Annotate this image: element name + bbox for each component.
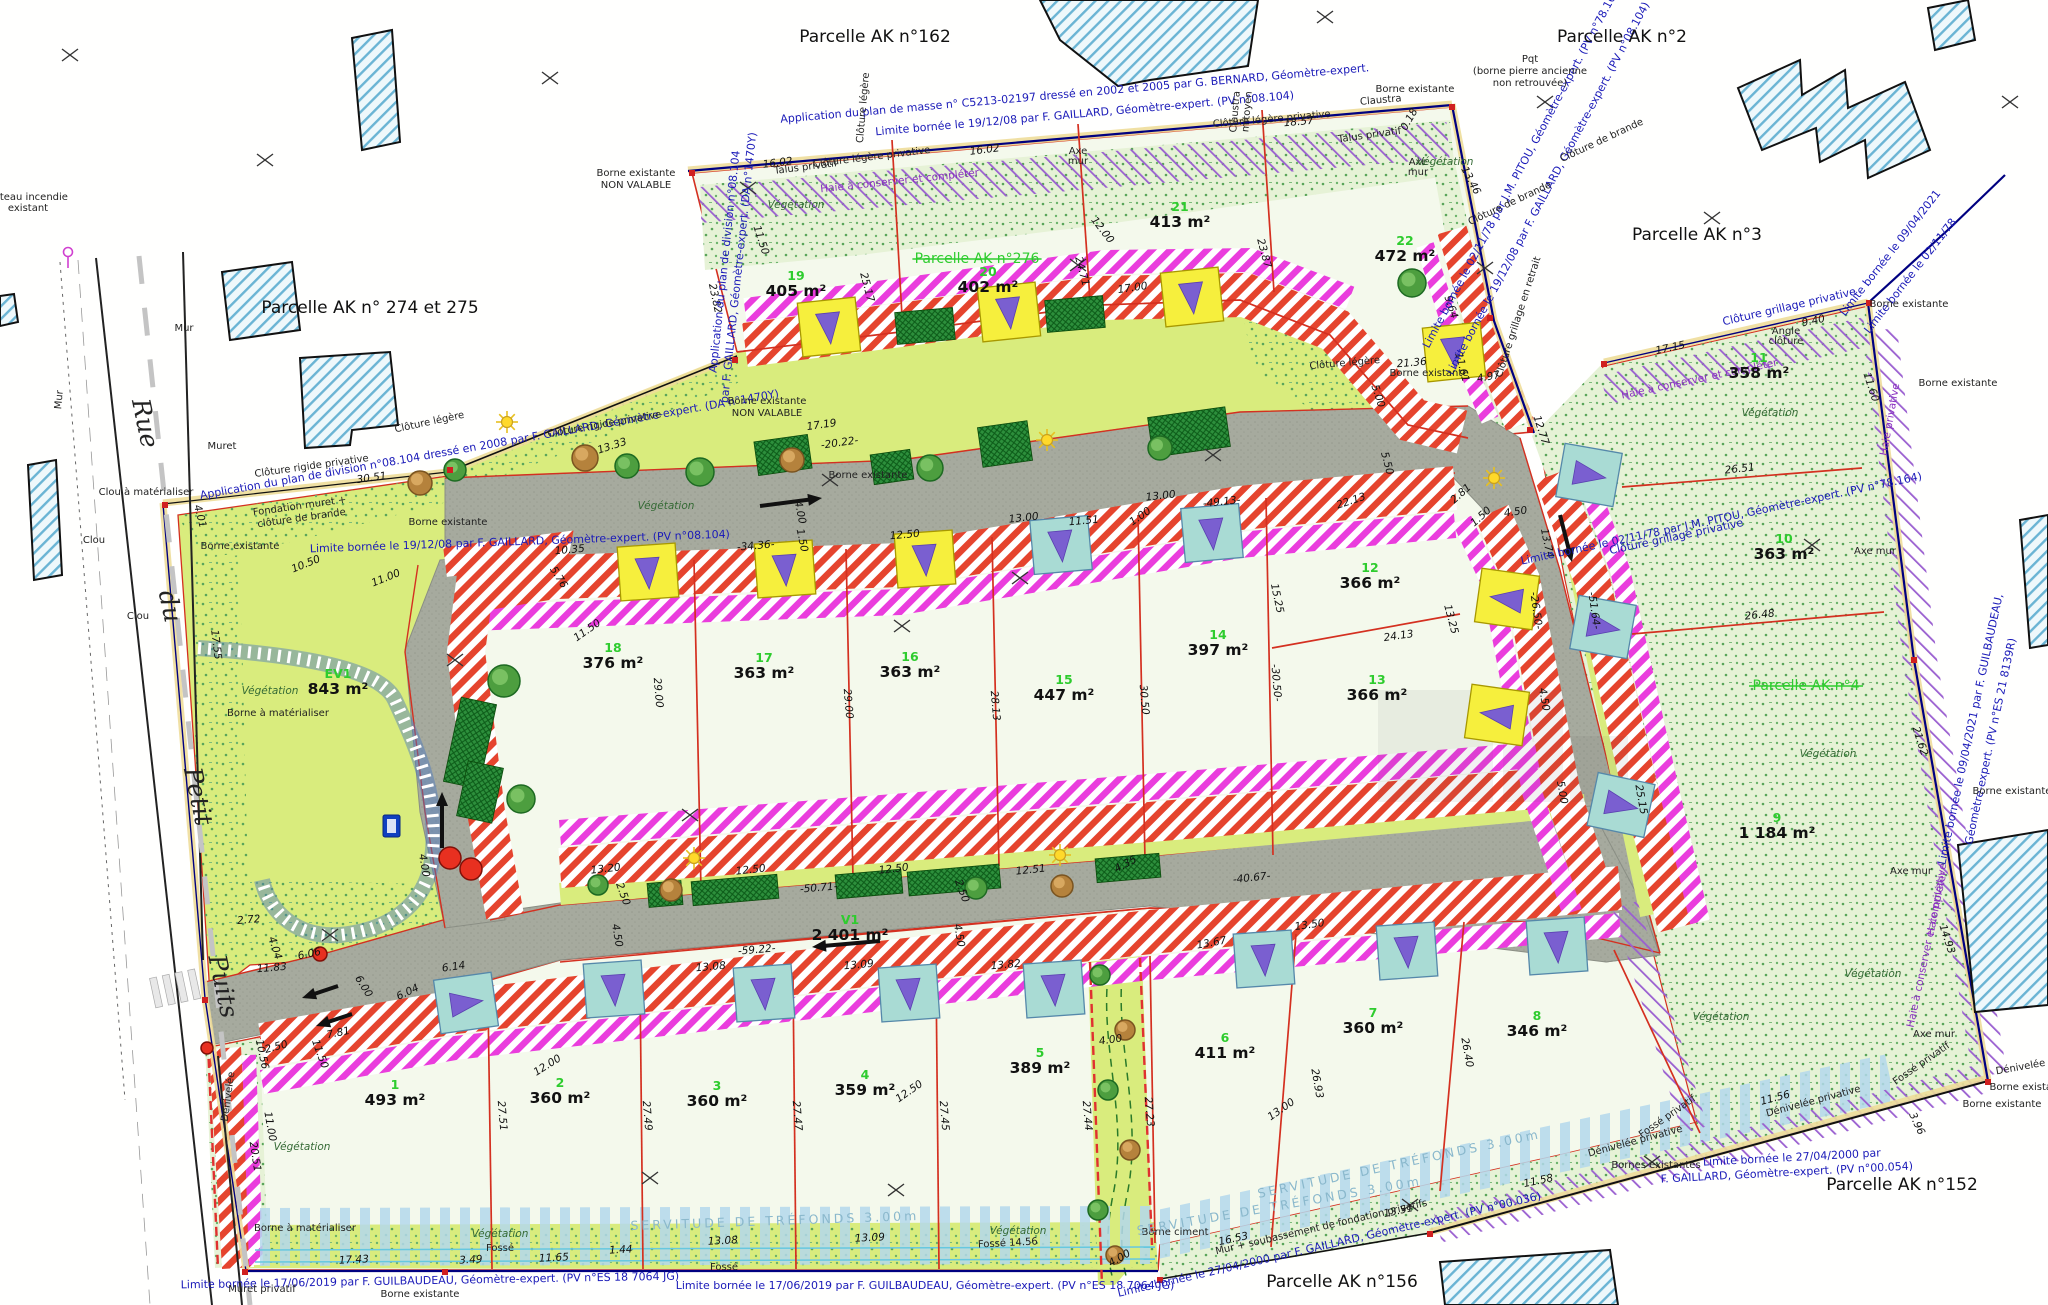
parcel-title-label: Parcelle AK n°152 (1826, 1175, 1978, 1195)
lot-area-label: 405 m² (766, 282, 827, 300)
hydrant-head (64, 248, 73, 257)
plan-annotation: Borne existante (1870, 299, 1949, 310)
tree-highlight (1402, 273, 1416, 287)
access-box-cyan (733, 964, 795, 1022)
fire-hydrant-icon (64, 248, 73, 269)
lot-number-label: 21 (1171, 199, 1188, 214)
lot-number-label: 9 (1773, 810, 1782, 825)
tree-highlight (1093, 968, 1103, 978)
plan-annotation: Muret privatif (228, 1284, 296, 1295)
lamp-bulb (502, 417, 513, 428)
boundary-marker-icon (162, 502, 168, 508)
lot-area-label: 360 m² (530, 1089, 591, 1107)
plan-annotation: (borne pierre ancienne (1473, 66, 1587, 77)
parcel-title-label: Parcelle AK n°156 (1266, 1272, 1418, 1292)
hedge (977, 421, 1032, 468)
tree-icon (1148, 436, 1172, 460)
crosswalk (150, 969, 201, 1008)
dimension-label: 3.49 (459, 1253, 483, 1266)
dimension-label: 11.65 (539, 1251, 570, 1265)
survey-cross-icon (2002, 96, 2018, 108)
hedge (1045, 296, 1106, 333)
tree-highlight (783, 450, 795, 462)
tree-icon (1088, 1200, 1108, 1220)
access-box-cyan (434, 972, 499, 1034)
boundary-marker-icon (242, 1269, 248, 1275)
plan-annotation: Fossé (710, 1261, 738, 1273)
access-box-cyan (1233, 930, 1295, 988)
plan-annotation: Mur (53, 389, 66, 410)
building (1958, 830, 2048, 1012)
sign-glyph (387, 819, 396, 833)
lot-number-label: 20 (979, 264, 997, 279)
tree-icon (507, 785, 535, 813)
access-box-cyan (1556, 443, 1622, 506)
plan-annotation: Bornes existantes (1611, 1160, 1700, 1171)
lot-area-label: 397 m² (1188, 641, 1249, 659)
street-lamp-icon (496, 411, 518, 433)
building (0, 294, 18, 326)
lamp-ray (511, 414, 515, 418)
lamp-bulb (1042, 435, 1053, 446)
building (1928, 0, 1975, 50)
street-lamp-icon (1483, 467, 1505, 489)
lot-number-label: 5 (1036, 1045, 1045, 1060)
survey-cross-icon (1704, 212, 1720, 224)
plan-annotation: clôture (1769, 335, 1804, 347)
cadastral-plan-drawing: 16.0216.0218.570.1813.469.6411.614.9723.… (0, 0, 2048, 1305)
tree-highlight (1123, 1142, 1133, 1152)
tree-highlight (511, 789, 525, 803)
lamp-ray (499, 414, 503, 418)
lamp-ray (511, 426, 515, 430)
lot-area-label: 447 m² (1034, 686, 1095, 704)
tree-icon (1098, 1080, 1118, 1100)
tree-highlight (1151, 439, 1163, 451)
lot-area-label: 363 m² (880, 663, 941, 681)
lot-area-label: 360 m² (1343, 1019, 1404, 1037)
access-box-yellow (1465, 684, 1530, 746)
tree-brown-icon (408, 471, 432, 495)
building (300, 352, 398, 448)
plan-annotation: NON VALABLE (732, 408, 802, 419)
access-box-cyan (1376, 922, 1438, 980)
dimension-label: 2.72 (237, 913, 262, 927)
plan-annotation: Pqt (1522, 54, 1538, 65)
tree-highlight (1101, 1083, 1111, 1093)
plan-annotation: Clou (83, 535, 105, 546)
lot-number-label: 8 (1533, 1008, 1542, 1023)
site-plan-canvas: 16.0216.0218.570.1813.469.6411.614.9723.… (0, 0, 2048, 1305)
lot-number-label: EV1 (325, 666, 352, 681)
plan-annotation: Borne existante (829, 470, 908, 481)
lot-number-label: 7 (1369, 1005, 1378, 1020)
lamp-bulb (689, 853, 700, 864)
lot-number-label: 11 (1750, 350, 1767, 365)
lot-number-label: 19 (787, 268, 804, 283)
tree-icon (917, 455, 943, 481)
lot-number-label: 15 (1055, 672, 1072, 687)
access-box-cyan (583, 960, 645, 1018)
street-lamp-icon (683, 847, 705, 869)
plan-annotation: Borne existante (728, 396, 807, 407)
plan-annotation: NON VALABLE (601, 180, 671, 191)
plan-annotation: Végétation (1417, 156, 1474, 168)
hedge (895, 308, 956, 345)
tree-highlight (920, 458, 933, 471)
lot-area-label: 413 m² (1150, 213, 1211, 231)
survey-cross-icon (1317, 11, 1333, 23)
parcel-title-label: Parcelle AK n° 274 et 275 (261, 298, 478, 318)
tree-highlight (1118, 1022, 1128, 1032)
dimension-label: 13.08 (708, 1234, 739, 1248)
tree-brown-icon (1120, 1140, 1140, 1160)
red-marker-icon (201, 1042, 213, 1054)
access-box-cyan (878, 964, 940, 1022)
plan-annotation: Poteau incendie (0, 192, 68, 203)
access-box-cyan (1023, 960, 1085, 1018)
lamp-ray (499, 426, 503, 430)
survey-cross-icon (542, 72, 558, 84)
plan-annotation: Végétation (1742, 407, 1799, 419)
access-box-yellow (1160, 267, 1223, 327)
tree-highlight (591, 878, 601, 888)
lot-number-label: 22 (1396, 233, 1413, 248)
building (2020, 515, 2048, 648)
dimension-label: 13.09 (855, 1231, 886, 1245)
dimension-label: 3.96 (1906, 1111, 1927, 1138)
plan-annotation: Mur (174, 323, 194, 334)
plan-annotation: Borne existante (1919, 378, 1998, 389)
lot-area-label: 366 m² (1340, 574, 1401, 592)
plan-annotation: Borne existante (1973, 786, 2048, 797)
plan-annotation: non retrouvée) (1493, 77, 1568, 89)
lot-area-label: 843 m² (308, 680, 369, 698)
plan-annotation: Clôture légère (393, 409, 465, 435)
lot-number-label: 16 (901, 649, 919, 664)
dimension-label: 1.44 (609, 1243, 633, 1256)
boundary-marker-icon (1487, 315, 1493, 321)
boundary-marker-icon (202, 997, 208, 1003)
survey-cross-icon (257, 154, 273, 166)
plan-annotation: Axe mur (1854, 546, 1897, 557)
lot-number-label: 13 (1368, 672, 1385, 687)
lot-area-label: 359 m² (835, 1081, 896, 1099)
tree-highlight (618, 457, 630, 469)
plan-annotation: Borne à matérialiser (227, 707, 330, 719)
lot-area-label: 363 m² (1754, 545, 1815, 563)
lot-number-label: 6 (1221, 1030, 1230, 1045)
tree-icon (615, 454, 639, 478)
tree-highlight (1054, 877, 1065, 888)
parcel-title-label: Parcelle AK n°162 (799, 27, 951, 47)
tree-highlight (1091, 1203, 1101, 1213)
tree-brown-icon (1051, 875, 1073, 897)
plan-annotation: Borne existante (381, 1289, 460, 1300)
tree-brown-icon (572, 445, 598, 471)
street-name-label: du (153, 588, 188, 625)
tree-highlight (492, 669, 508, 685)
lot-number-label: 4 (861, 1067, 870, 1082)
plan-annotation: Borne existante (597, 168, 676, 179)
lot-area-label: 2 401 m² (812, 926, 889, 944)
lot-area-label: 363 m² (734, 664, 795, 682)
lot-area-label: 472 m² (1375, 247, 1436, 265)
plan-annotation: Axe mur (1890, 866, 1933, 877)
tree-icon (686, 458, 714, 486)
plan-annotation: mur (1068, 156, 1089, 167)
access-box-yellow (617, 543, 679, 601)
dimension-label: 17.43 (339, 1253, 370, 1267)
plan-annotation: existant (8, 203, 48, 214)
access-box-cyan (1526, 917, 1588, 975)
lot-area-label: 376 m² (583, 654, 644, 672)
boundary-marker-icon (1911, 657, 1917, 663)
plan-annotation: Borne existante (201, 541, 280, 552)
lot-number-label: 18 (604, 640, 621, 655)
plan-annotation: Végétation (1845, 968, 1902, 980)
tree-highlight (575, 448, 588, 461)
lamp-bulb (1055, 850, 1066, 861)
building (28, 460, 62, 580)
tree-icon (1090, 965, 1110, 985)
plan-annotation: Muret (208, 441, 237, 452)
tree-highlight (690, 462, 704, 476)
parcel-title-label: Parcelle AK n°3 (1632, 225, 1762, 245)
tree-brown-icon (660, 879, 682, 901)
tree-highlight (968, 880, 979, 891)
plan-annotation: Végétation (768, 199, 825, 211)
plan-annotation: Fossé (486, 1242, 514, 1254)
lot-number-label: 2 (556, 1075, 565, 1090)
building (1440, 1250, 1618, 1305)
lot-area-label: 366 m² (1347, 686, 1408, 704)
plan-annotation: Clou (127, 611, 149, 622)
lot-area-label: 358 m² (1729, 364, 1790, 382)
lot-area-label: 360 m² (687, 1092, 748, 1110)
plan-annotation: Végétation (472, 1228, 529, 1240)
plan-annotation: Borne existante (1990, 1082, 2048, 1093)
plan-annotation: Végétation (1800, 748, 1857, 760)
boundary-marker-icon (1601, 361, 1607, 367)
boundary-marker-icon (689, 170, 695, 176)
plan-annotation: Végétation (990, 1225, 1047, 1237)
lot-area-label: 402 m² (958, 278, 1019, 296)
access-box-cyan (1181, 504, 1243, 563)
lot-number-label: 14 (1209, 627, 1227, 642)
lot-number-label: 10 (1775, 531, 1793, 546)
lamp-bulb (1489, 473, 1500, 484)
red-marker-icon (439, 847, 461, 869)
tree-highlight (411, 473, 423, 485)
tree-icon (588, 875, 608, 895)
plan-annotation: Borne existante (1390, 368, 1469, 379)
plan-annotation: Borne existante (409, 517, 488, 528)
parcel-title-label: Parcelle AK n°2 (1557, 27, 1687, 47)
plan-annotation: Végétation (274, 1141, 331, 1153)
boundary-marker-icon (1527, 427, 1533, 433)
building (1738, 60, 1930, 178)
boundary-marker-icon (447, 467, 453, 473)
lot-area-label: 411 m² (1195, 1044, 1256, 1062)
boundary-annotation: Limite bornée le 17/06/2019 par F. GUILB… (676, 1279, 1175, 1292)
tree-icon (488, 665, 520, 697)
lot-area-label: 1 184 m² (1739, 824, 1816, 842)
access-box-yellow (797, 297, 860, 357)
lot-number-label: V1 (841, 912, 859, 927)
tree-brown-icon (780, 448, 804, 472)
plan-annotation: Végétation (242, 685, 299, 697)
tree-highlight (663, 881, 674, 892)
plan-annotation: Borne à matérialiser (254, 1222, 357, 1234)
info-sign-icon (383, 815, 400, 837)
lot-number-label: 17 (755, 650, 772, 665)
boundary-marker-icon (1427, 1231, 1433, 1237)
lot-number-label: 3 (713, 1078, 722, 1093)
plan-annotation: Axe mur (1913, 1029, 1956, 1040)
lot-area-label: 389 m² (1010, 1059, 1071, 1077)
building (352, 30, 400, 150)
plan-annotation: Végétation (1693, 1011, 1750, 1023)
red-marker-icon (460, 858, 482, 880)
street-lamp-icon (1036, 429, 1058, 451)
boundary-marker-icon (1449, 104, 1455, 110)
street-name-label: Rue (126, 395, 165, 451)
street-lamp-icon (1049, 844, 1071, 866)
plan-annotation: Clou à matérialiser (99, 486, 195, 498)
plan-annotation: Borne existante (1376, 84, 1455, 95)
lot-number-label: 1 (391, 1077, 400, 1092)
lot-area-label: 493 m² (365, 1091, 426, 1109)
plan-annotation: Borne existante (1963, 1099, 2042, 1110)
tree-icon (1398, 269, 1426, 297)
lot-number-label: 12 (1361, 560, 1378, 575)
lot-area-label: 346 m² (1507, 1022, 1568, 1040)
plan-annotation: mur (1408, 167, 1429, 178)
plan-annotation: Végétation (638, 500, 695, 512)
survey-cross-icon (62, 49, 78, 61)
